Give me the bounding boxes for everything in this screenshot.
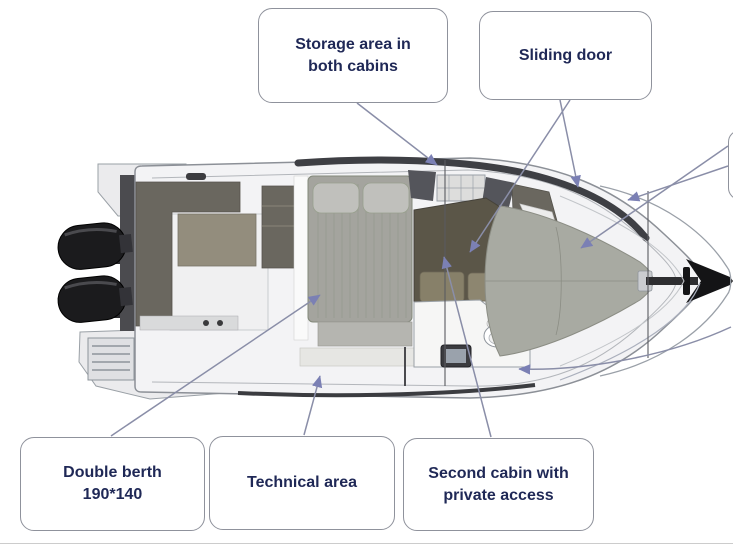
arrow-storage-to-cabin <box>357 103 437 165</box>
seat-base-strip <box>140 316 238 330</box>
pillow-left <box>313 183 359 213</box>
boat-deck-plan-diagram: Storage area in both cabins Sliding door… <box>0 0 733 550</box>
callout-technical-area: Technical area <box>209 436 395 530</box>
callout-double-berth: Double berth 190*140 <box>20 437 205 531</box>
cabin-steps <box>300 348 416 366</box>
callout-sliding-door-label: Sliding door <box>511 41 620 71</box>
cleat <box>186 173 206 180</box>
roof-pillar-left <box>408 170 436 201</box>
cabin-sole-strip <box>294 176 308 340</box>
callout-second-cabin: Second cabin with private access <box>403 438 594 531</box>
shower-hatch-inner <box>446 349 466 363</box>
arrow-cropped-box-1 <box>628 166 728 200</box>
callout-second-cabin-label: Second cabin with private access <box>420 459 576 510</box>
second-cabin-cushion <box>420 272 464 302</box>
pillow-right <box>363 183 409 213</box>
page-divider-line <box>0 543 733 544</box>
callout-storage-area: Storage area in both cabins <box>258 8 448 103</box>
callout-storage-area-label: Storage area in both cabins <box>287 30 419 81</box>
callout-cropped-right <box>728 130 733 200</box>
boarding-ladder <box>88 338 134 380</box>
boat-plan <box>56 158 733 399</box>
callout-double-berth-label: Double berth 190*140 <box>55 458 170 509</box>
deck-fitting <box>203 320 209 326</box>
callout-technical-area-label: Technical area <box>239 468 365 498</box>
deck-fitting <box>217 320 223 326</box>
cockpit-seat-cushion <box>178 214 256 266</box>
berth-foot-step <box>318 322 412 346</box>
callout-sliding-door: Sliding door <box>479 11 652 100</box>
